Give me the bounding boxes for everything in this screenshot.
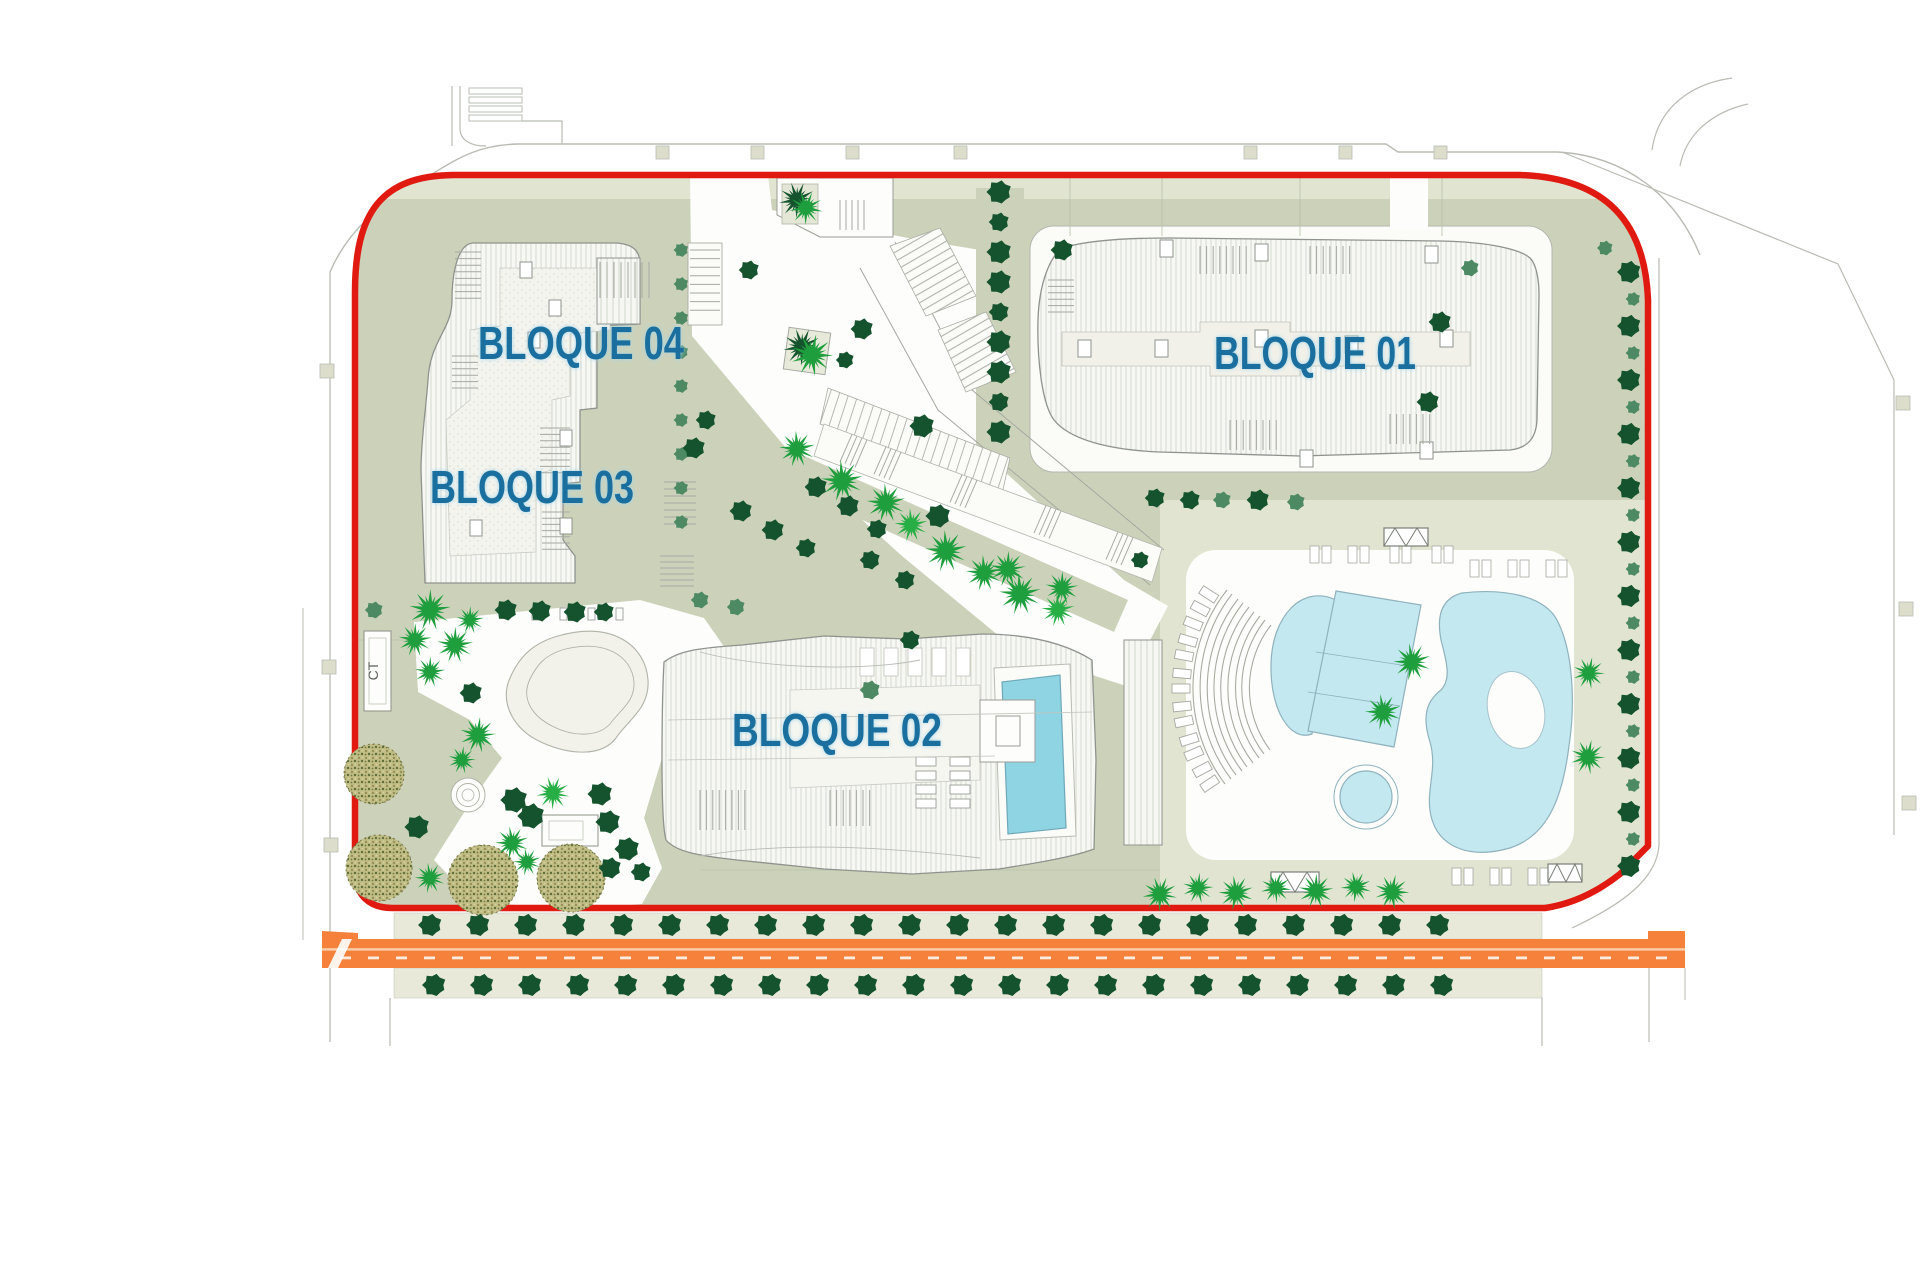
svg-text:BLOQUE 04: BLOQUE 04 (478, 317, 684, 369)
svg-text:CT: CT (365, 661, 381, 680)
svg-text:BLOQUE 02: BLOQUE 02 (732, 704, 942, 756)
svg-text:BLOQUE 01: BLOQUE 01 (1214, 327, 1416, 379)
svg-text:BLOQUE 03: BLOQUE 03 (430, 461, 634, 513)
